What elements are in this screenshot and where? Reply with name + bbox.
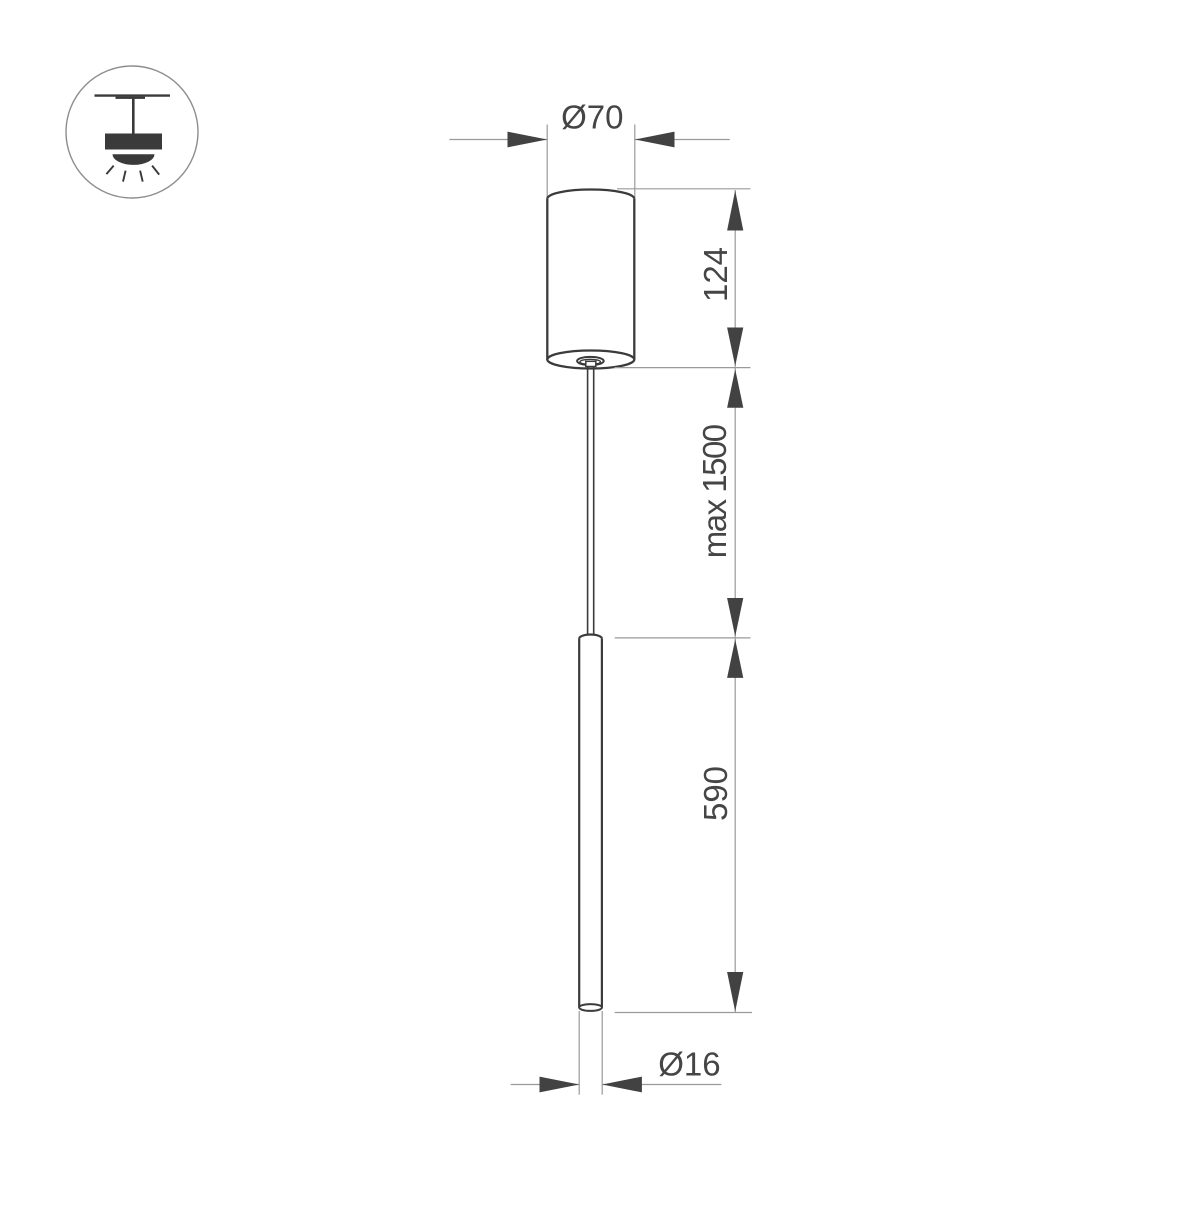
svg-text:590: 590 [697, 766, 734, 821]
svg-text:Ø16: Ø16 [658, 1046, 720, 1083]
svg-text:max 1500: max 1500 [696, 424, 733, 558]
svg-text:124: 124 [697, 247, 734, 302]
svg-text:Ø70: Ø70 [561, 99, 623, 136]
